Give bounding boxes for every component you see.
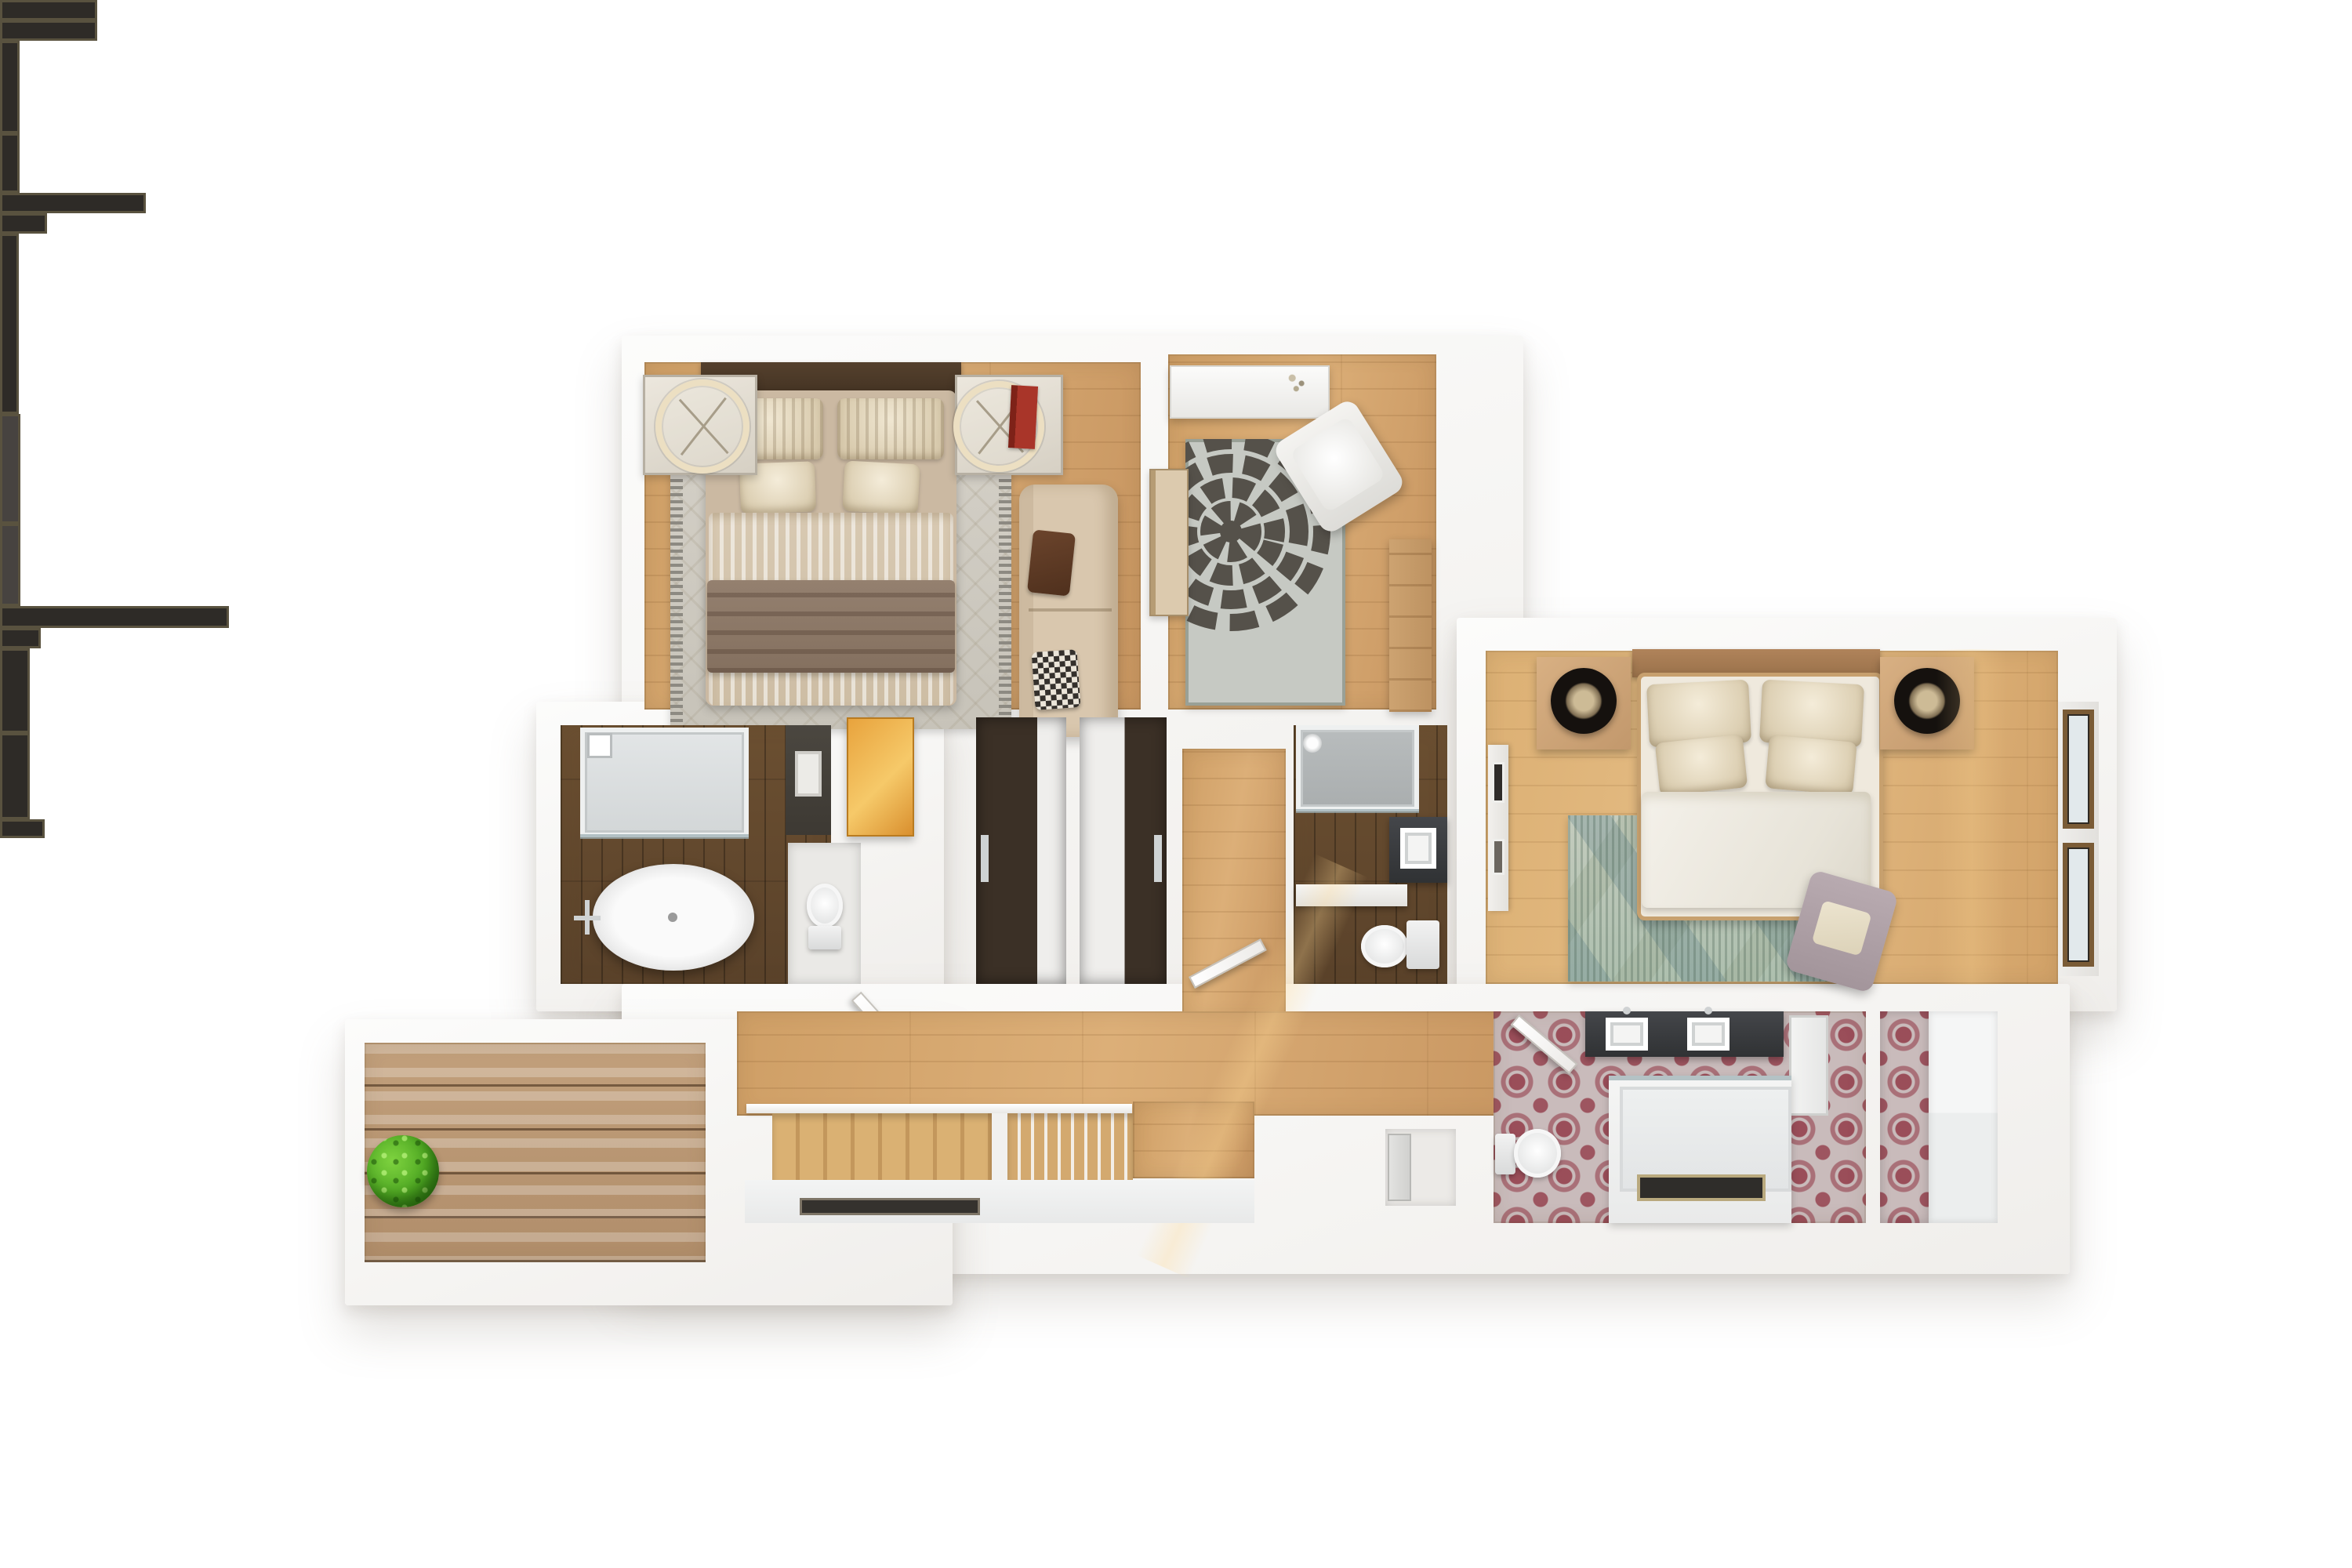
pillow (837, 398, 944, 459)
red-book (1008, 385, 1038, 449)
tile-strip (1880, 1011, 1929, 1223)
shower-glass (1296, 809, 1419, 813)
tub-drain-icon (668, 913, 677, 922)
picture-frame-icon (1492, 762, 1504, 803)
rug-fringe (670, 431, 683, 729)
window-icon (0, 628, 41, 648)
stairwell-opening (800, 1198, 980, 1215)
accent-wall (786, 725, 831, 835)
rug-fringe (999, 431, 1011, 729)
seat-cushion-divider (1029, 608, 1112, 612)
water-closet (788, 843, 861, 984)
shower-head-icon (1303, 734, 1322, 753)
shower-glass (580, 834, 749, 839)
window-niche (2058, 702, 2099, 976)
picture-frame-icon (1492, 839, 1504, 875)
bathroom-vanity (1389, 817, 1447, 883)
pillow (1765, 735, 1857, 796)
toilet (807, 884, 843, 927)
media-bench (1389, 539, 1432, 712)
tub-faucet-icon (574, 900, 601, 935)
black-ring-lamp-icon (1551, 668, 1617, 734)
toilet-tank (808, 926, 841, 949)
shower-head-icon (590, 735, 610, 756)
armchair-cushion (1290, 416, 1386, 514)
amber-wardrobe-cabinet (847, 717, 914, 837)
window-icon (0, 133, 20, 193)
wardrobe-closet (1080, 717, 1167, 984)
shower-tray (1620, 1087, 1791, 1192)
decor-sprig-icon (1284, 370, 1311, 397)
linear-drain (1640, 1178, 1762, 1198)
shelf-partition (1296, 884, 1407, 906)
sink (1400, 828, 1436, 869)
shower-enclosure (1609, 1076, 1791, 1223)
appliance-icon (1388, 1134, 1411, 1201)
window-icon (2063, 710, 2094, 829)
hall-landing (1133, 1102, 1254, 1178)
toilet-tank (1406, 920, 1439, 969)
glass-door-frame (0, 733, 30, 819)
armchair-cushion (1812, 900, 1872, 956)
gloss-panel (1929, 1011, 1998, 1223)
upholstered-bench (1149, 469, 1189, 616)
window-icon (0, 41, 20, 133)
ring-pendant-lamp-icon (655, 379, 750, 474)
houndstooth-pillow (1031, 649, 1080, 710)
wall-shelf-niche (795, 751, 822, 797)
faucet-icon (1623, 1007, 1631, 1014)
pillow (1655, 734, 1748, 796)
slider-handle (1154, 835, 1162, 882)
black-ring-lamp-icon (1894, 668, 1960, 734)
faucet-icon (1704, 1007, 1712, 1014)
stair-landing-rim (746, 1104, 1132, 1113)
window-icon (0, 0, 97, 20)
laundry-closet (1385, 1129, 1456, 1206)
second-bed (1632, 649, 1880, 916)
stair-flight-wide (772, 1113, 992, 1180)
sink (1687, 1018, 1730, 1051)
vent-slot (0, 606, 229, 628)
hallway-main (737, 1011, 1560, 1116)
window-icon (0, 819, 45, 838)
pillow (842, 461, 920, 515)
toilet-tank (1495, 1134, 1515, 1174)
window-icon (0, 193, 146, 213)
toilet (1361, 925, 1408, 967)
sink (1606, 1018, 1648, 1051)
double-vanity (1585, 1011, 1784, 1057)
brown-throw-blanket (707, 580, 955, 673)
picture-frames-console (1488, 745, 1508, 911)
window-icon (2063, 843, 2094, 967)
glass-door-frame (0, 648, 30, 733)
window-icon (0, 234, 19, 414)
freestanding-tub (593, 864, 754, 971)
window-icon (0, 213, 47, 234)
mirror-panel (1789, 1015, 1828, 1116)
slider-handle (981, 835, 989, 882)
window-icon (0, 20, 97, 41)
wall-niche (0, 414, 20, 524)
brown-accent-pillow (1027, 529, 1076, 596)
stair-divider (992, 1113, 1007, 1180)
floor-plan-canvas (0, 0, 2352, 1568)
wall-niche (0, 524, 20, 606)
wardrobe-closet (976, 717, 1066, 984)
toilet (1514, 1129, 1561, 1178)
shower-glass (1609, 1076, 1791, 1080)
loveseat-sofa (1019, 485, 1118, 737)
stair-flight-narrow (1007, 1113, 1133, 1180)
plant-shrub-icon (367, 1135, 439, 1207)
adjacent-tiled-room (1880, 1011, 1998, 1223)
